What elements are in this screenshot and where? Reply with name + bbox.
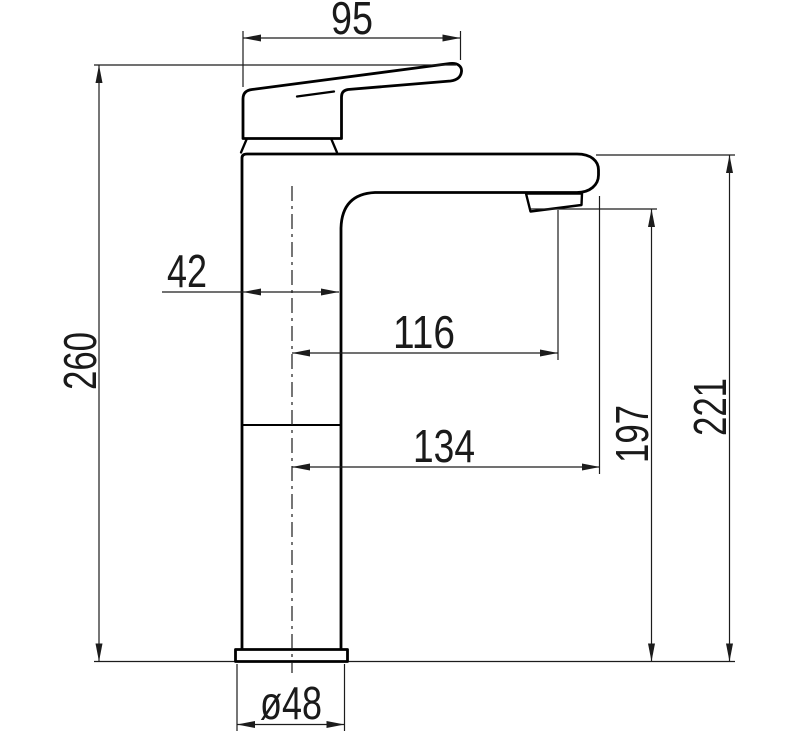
faucet-body-spout (242, 154, 599, 650)
dim221-arrow-bottom (726, 644, 733, 662)
dimension-label-134: 134 (413, 420, 475, 472)
dimension-label-95: 95 (331, 0, 373, 44)
dimension-label-116: 116 (393, 306, 455, 358)
dimension-label-42: 42 (167, 245, 207, 297)
dimension-label-260: 260 (54, 332, 106, 390)
dim116-arrow-right (540, 350, 558, 357)
dim197-arrow-top (648, 209, 655, 227)
dim260-arrow-top (96, 65, 103, 83)
faucet-outline (236, 63, 599, 673)
dimension-197: 197 (531, 209, 658, 662)
dimension-label-diameter-48: ø48 (260, 677, 322, 729)
neck-right-edge (332, 140, 338, 153)
dim221-arrow-top (726, 155, 733, 173)
faucet-handle-lever (243, 63, 462, 138)
dim48-arrow-right (327, 721, 345, 728)
neck-left-edge (241, 140, 247, 153)
faucet-dimension-drawing: 95 260 42 116 134 197 (0, 0, 800, 752)
dim260-arrow-bottom (96, 644, 103, 662)
technical-drawing-canvas: 95 260 42 116 134 197 (0, 0, 800, 752)
dim95-arrow-right (443, 35, 461, 42)
dim134-arrow-right (582, 464, 600, 471)
dim197-arrow-bottom (648, 644, 655, 662)
dim95-arrow-left (243, 35, 261, 42)
dim48-arrow-left (237, 721, 255, 728)
dimension-label-197: 197 (606, 405, 658, 463)
dimension-diameter-48: ø48 (237, 664, 345, 731)
dimension-label-221: 221 (684, 378, 736, 436)
